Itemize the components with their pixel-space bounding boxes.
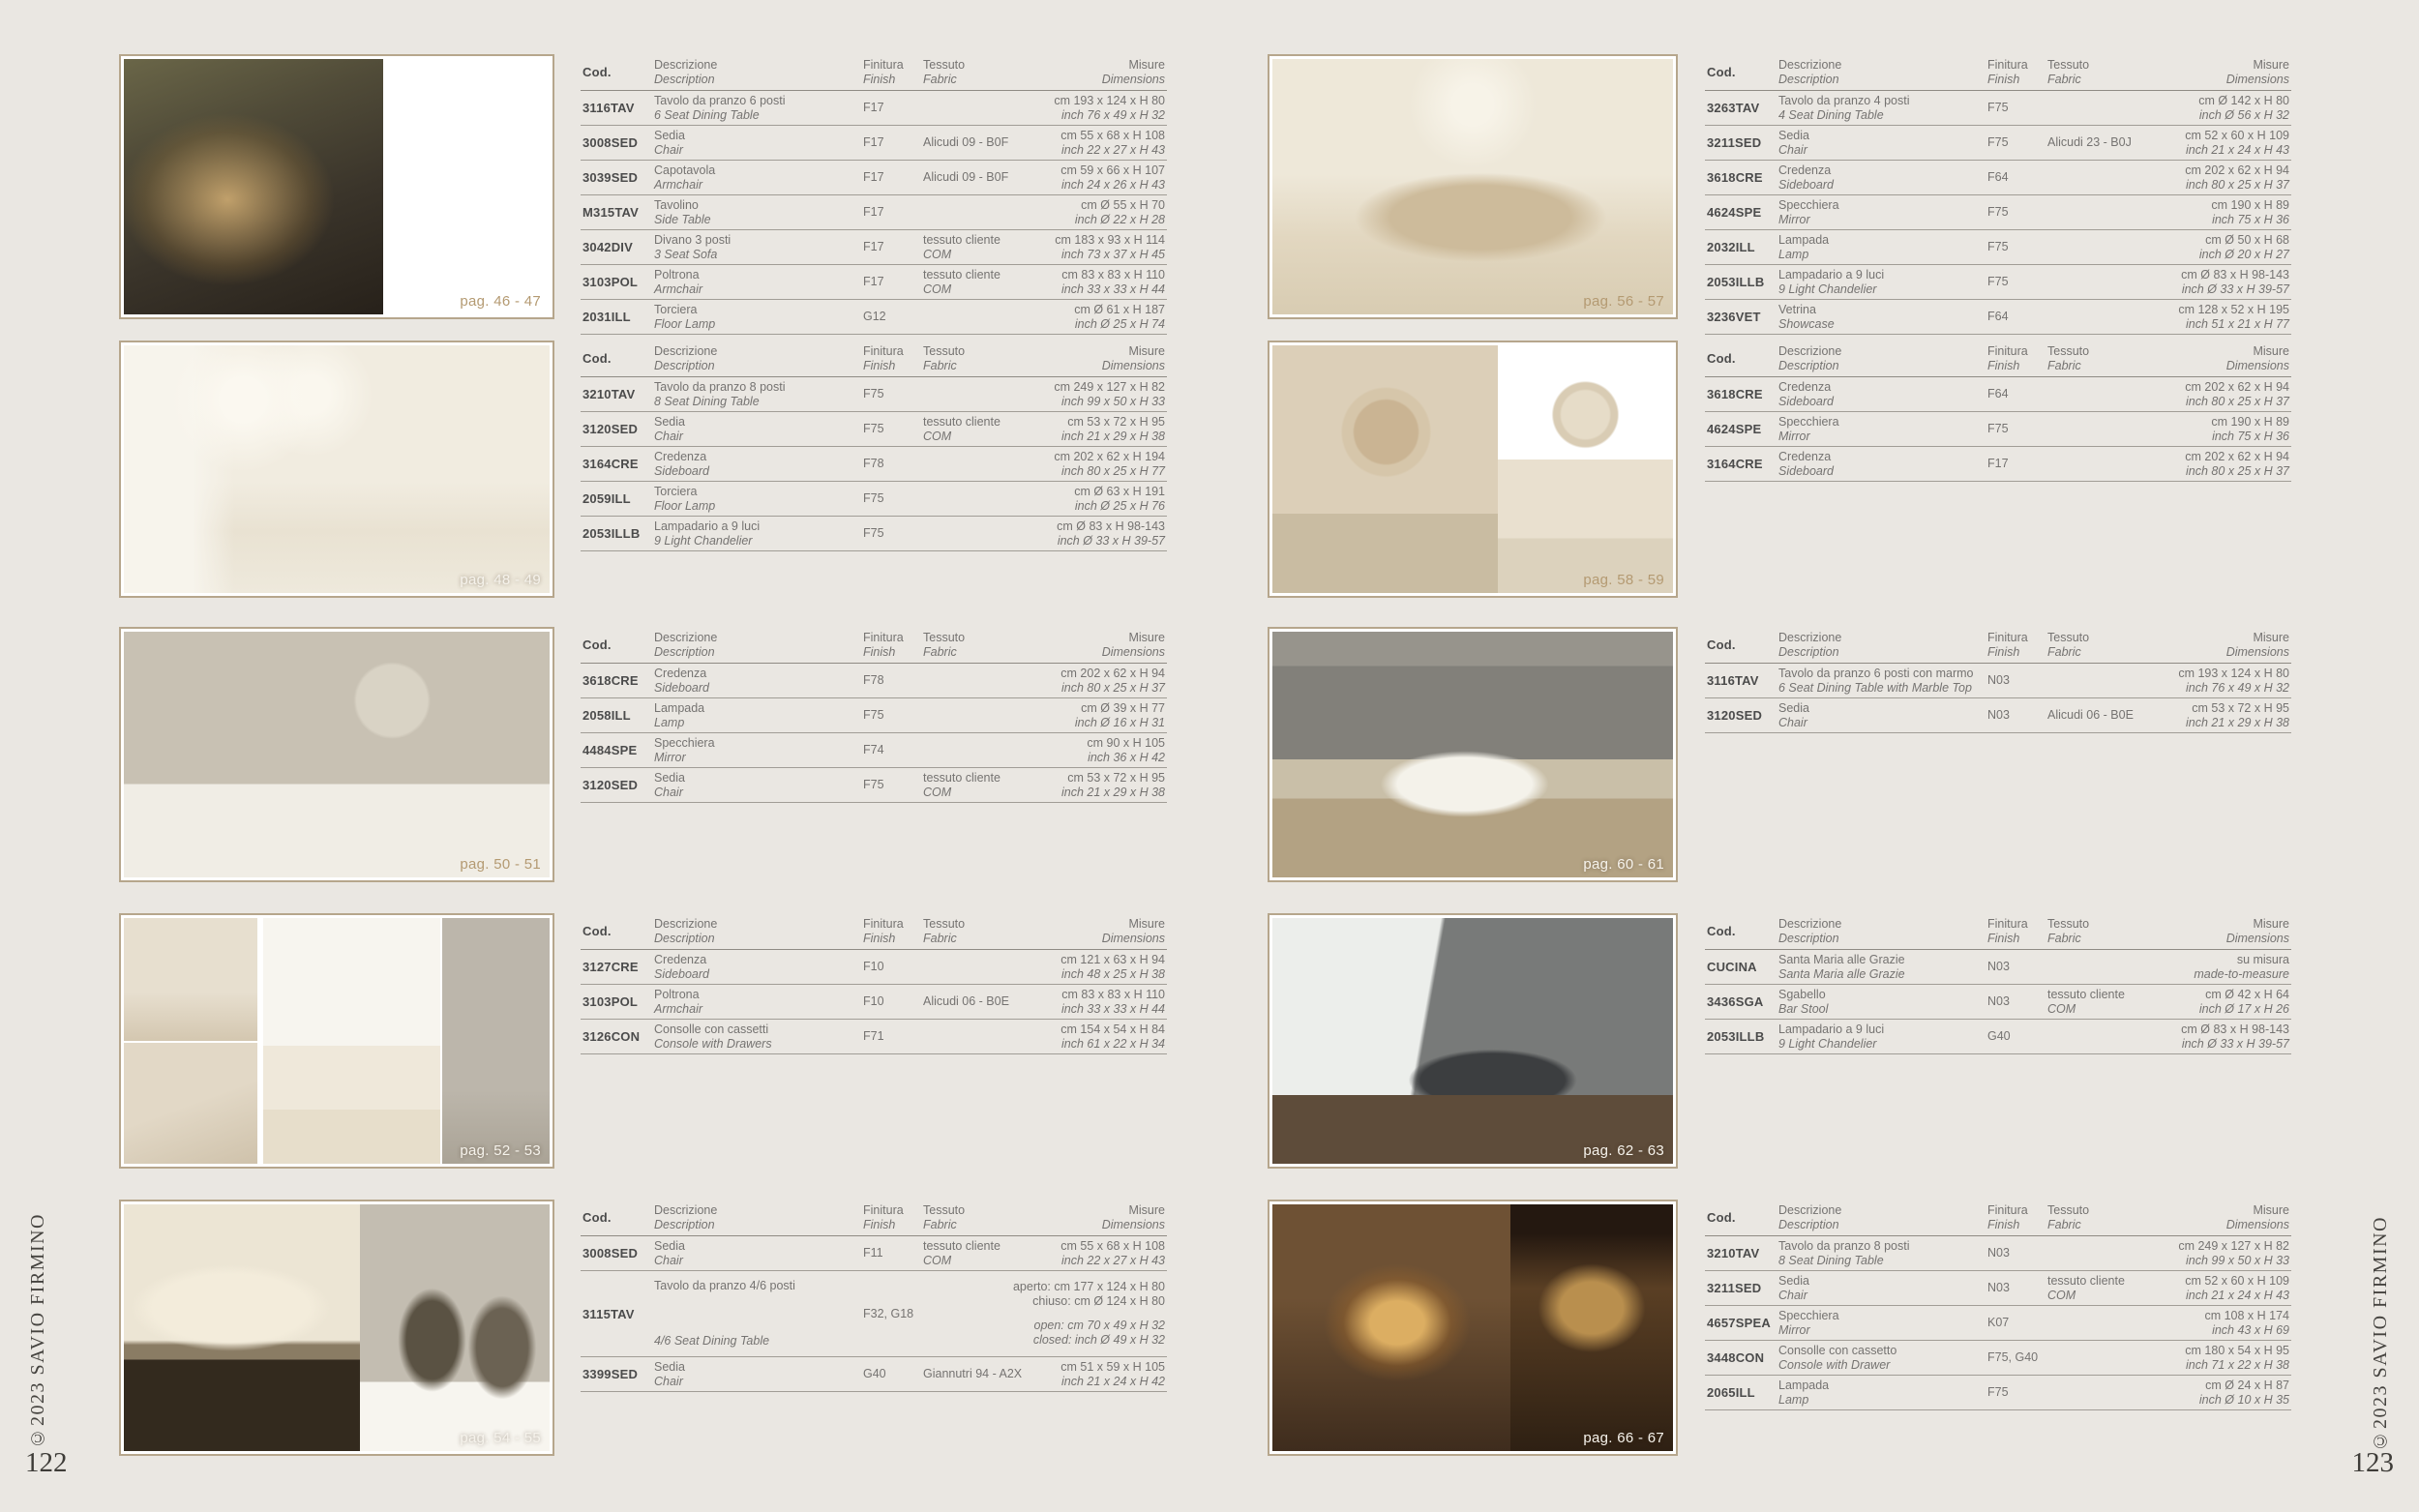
product-description: LampadaLamp xyxy=(1778,230,1984,264)
photo-block-5: pag. 54 - 55 xyxy=(119,1200,554,1456)
product-dimensions: cm 190 x H 89inch 75 x H 36 xyxy=(2111,195,2289,229)
product-code: 3211SED xyxy=(1707,1271,1777,1305)
product-description: VetrinaShowcase xyxy=(1778,300,1984,334)
product-dimensions: cm 52 x 60 x H 109inch 21 x 24 x H 43 xyxy=(2111,1271,2289,1305)
photo-block-3: pag. 50 - 51 xyxy=(119,627,554,882)
product-description: Tavolo da pranzo 4/6 posti4/6 Seat Dinin… xyxy=(654,1271,859,1356)
product-description: Tavolo da pranzo 8 posti8 Seat Dining Ta… xyxy=(654,377,859,411)
product-finish: F10 xyxy=(863,950,921,984)
header-dimensions: MisureDimensions xyxy=(2111,913,2289,949)
copyright-left: ©2023 SAVIO FIRMINO xyxy=(27,1213,49,1449)
product-dimensions: cm Ø 50 x H 68inch Ø 20 x H 27 xyxy=(2111,230,2289,264)
table-row: 3103POLPoltronaArmchairF17tessuto client… xyxy=(581,265,1167,300)
header-dimensions: MisureDimensions xyxy=(987,913,1165,949)
table-row: 3120SEDSediaChairN03Alicudi 06 - B0Ecm 5… xyxy=(1705,698,2291,733)
table-row: 3120SEDSediaChairF75tessuto clienteCOMcm… xyxy=(581,768,1167,803)
header-finish: FinituraFinish xyxy=(1987,1200,2046,1235)
product-dimensions: cm 128 x 52 x H 195inch 51 x 21 x H 77 xyxy=(2111,300,2289,334)
product-finish: F71 xyxy=(863,1020,921,1053)
header-dimensions: MisureDimensions xyxy=(2111,1200,2289,1235)
product-dimensions: su misuramade-to-measure xyxy=(2111,950,2289,984)
table-row: 3039SEDCapotavolaArmchairF17Alicudi 09 -… xyxy=(581,161,1167,195)
furniture-photo xyxy=(124,345,550,593)
product-code: 3126CON xyxy=(582,1020,652,1053)
product-description: Tavolo da pranzo 8 posti8 Seat Dining Ta… xyxy=(1778,1236,1984,1270)
product-description: CredenzaSideboard xyxy=(1778,377,1984,411)
header-code: Cod. xyxy=(1707,341,1777,376)
product-code: 2053ILLB xyxy=(1707,265,1777,299)
table-header: Cod.DescrizioneDescriptionFinituraFinish… xyxy=(581,627,1167,664)
product-dimensions: cm Ø 42 x H 64inch Ø 17 x H 26 xyxy=(2111,985,2289,1019)
product-code: 2058ILL xyxy=(582,698,652,732)
product-code: 3116TAV xyxy=(1707,664,1777,697)
product-description: LampadaLamp xyxy=(654,698,859,732)
product-description: CredenzaSideboard xyxy=(1778,447,1984,481)
table-row: 2059ILLTorcieraFloor LampF75cm Ø 63 x H … xyxy=(581,482,1167,517)
table-header: Cod.DescrizioneDescriptionFinituraFinish… xyxy=(1705,913,2291,950)
photo-block-2: pag. 48 - 49 xyxy=(119,341,554,598)
product-finish: F75 xyxy=(1987,1376,2046,1409)
header-code: Cod. xyxy=(1707,627,1777,663)
product-finish: N03 xyxy=(1987,664,2046,697)
product-description: SediaChair xyxy=(1778,1271,1984,1305)
table-row: 2053ILLBLampadario a 9 luci9 Light Chand… xyxy=(1705,1020,2291,1054)
spec-table: Cod.DescrizioneDescriptionFinituraFinish… xyxy=(581,913,1167,1054)
product-finish: F75 xyxy=(1987,126,2046,160)
product-description: Tavolo da pranzo 6 posti con marmo6 Seat… xyxy=(1778,664,1984,697)
product-dimensions: cm 202 x 62 x H 94inch 80 x 25 x H 37 xyxy=(2111,447,2289,481)
table-row: 2053ILLBLampadario a 9 luci9 Light Chand… xyxy=(581,517,1167,551)
header-finish: FinituraFinish xyxy=(1987,54,2046,90)
header-description: DescrizioneDescription xyxy=(1778,1200,1984,1235)
catalog-spread: pag. 46 - 47 pag. 48 - 49 pag. 50 - 51 p… xyxy=(0,0,2419,1512)
product-description: Tavolo da pranzo 4 posti4 Seat Dining Ta… xyxy=(1778,91,1984,125)
product-code: 4624SPE xyxy=(1707,195,1777,229)
product-description: Divano 3 posti3 Seat Sofa xyxy=(654,230,859,264)
table-row: 3618CRECredenzaSideboardF64cm 202 x 62 x… xyxy=(1705,377,2291,412)
product-dimensions: cm 59 x 66 x H 107inch 24 x 26 x H 43 xyxy=(987,161,1165,194)
product-finish: F17 xyxy=(863,126,921,160)
table-row: 3126CONConsolle con cassettiConsole with… xyxy=(581,1020,1167,1054)
product-finish: G12 xyxy=(863,300,921,334)
page-ref-label: pag. 54 - 55 xyxy=(460,1430,541,1446)
product-code: 3008SED xyxy=(582,126,652,160)
header-dimensions: MisureDimensions xyxy=(987,54,1165,90)
product-dimensions: cm Ø 83 x H 98-143inch Ø 33 x H 39-57 xyxy=(2111,1020,2289,1053)
product-code: 3211SED xyxy=(1707,126,1777,160)
header-finish: FinituraFinish xyxy=(1987,341,2046,376)
header-dimensions: MisureDimensions xyxy=(2111,54,2289,90)
product-code: 3263TAV xyxy=(1707,91,1777,125)
table-row: 3211SEDSediaChairN03tessuto clienteCOMcm… xyxy=(1705,1271,2291,1306)
header-description: DescrizioneDescription xyxy=(654,1200,859,1235)
product-code: 3399SED xyxy=(582,1357,652,1391)
header-finish: FinituraFinish xyxy=(863,913,921,949)
header-description: DescrizioneDescription xyxy=(1778,913,1984,949)
product-finish: F75 xyxy=(863,377,921,411)
header-dimensions: MisureDimensions xyxy=(987,341,1165,376)
table-row: 3008SEDSediaChairF17Alicudi 09 - B0Fcm 5… xyxy=(581,126,1167,161)
table-row: 3210TAVTavolo da pranzo 8 posti8 Seat Di… xyxy=(1705,1236,2291,1271)
table-row: M315TAVTavolinoSide TableF17cm Ø 55 x H … xyxy=(581,195,1167,230)
furniture-photo xyxy=(124,1204,361,1451)
product-description: CredenzaSideboard xyxy=(654,950,859,984)
page-number-right: 123 xyxy=(2352,1447,2395,1479)
product-dimensions: cm 193 x 124 x H 80inch 76 x 49 x H 32 xyxy=(987,91,1165,125)
product-code: 3236VET xyxy=(1707,300,1777,334)
product-code: 2053ILLB xyxy=(1707,1020,1777,1053)
header-code: Cod. xyxy=(582,627,652,663)
table-row: 3116TAVTavolo da pranzo 6 posti6 Seat Di… xyxy=(581,91,1167,126)
header-dimensions: MisureDimensions xyxy=(987,1200,1165,1235)
product-finish: F11 xyxy=(863,1236,921,1270)
product-dimensions: cm 90 x H 105inch 36 x H 42 xyxy=(987,733,1165,767)
product-dimensions: cm Ø 24 x H 87inch Ø 10 x H 35 xyxy=(2111,1376,2289,1409)
product-dimensions: cm Ø 83 x H 98-143inch Ø 33 x H 39-57 xyxy=(2111,265,2289,299)
furniture-photo xyxy=(442,918,551,1164)
header-finish: FinituraFinish xyxy=(863,1200,921,1235)
product-dimensions: cm Ø 61 x H 187inch Ø 25 x H 74 xyxy=(987,300,1165,334)
furniture-photo xyxy=(1272,345,1500,593)
header-description: DescrizioneDescription xyxy=(654,913,859,949)
product-code: 3103POL xyxy=(582,265,652,299)
page-ref-label: pag. 52 - 53 xyxy=(460,1142,541,1159)
table-row: 3448CONConsolle con cassettoConsole with… xyxy=(1705,1341,2291,1376)
product-description: TavolinoSide Table xyxy=(654,195,859,229)
table-header: Cod.DescrizioneDescriptionFinituraFinish… xyxy=(1705,1200,2291,1236)
product-description: Consolle con cassettiConsole with Drawer… xyxy=(654,1020,859,1053)
product-finish: F17 xyxy=(863,265,921,299)
product-dimensions: cm 51 x 59 x H 105inch 21 x 24 x H 42 xyxy=(987,1357,1165,1391)
product-description: LampadaLamp xyxy=(1778,1376,1984,1409)
product-description: Lampadario a 9 luci9 Light Chandelier xyxy=(654,517,859,550)
product-dimensions: cm 202 x 62 x H 94inch 80 x 25 x H 37 xyxy=(2111,377,2289,411)
table-row: CUCINASanta Maria alle GrazieSanta Maria… xyxy=(1705,950,2291,985)
product-dimensions: cm Ø 63 x H 191inch Ø 25 x H 76 xyxy=(987,482,1165,516)
table-row: 3116TAVTavolo da pranzo 6 posti con marm… xyxy=(1705,664,2291,698)
product-description: SediaChair xyxy=(654,768,859,802)
product-finish: F75 xyxy=(863,517,921,550)
product-finish: F64 xyxy=(1987,300,2046,334)
table-row: 3164CRECredenzaSideboardF78cm 202 x 62 x… xyxy=(581,447,1167,482)
product-code: 3618CRE xyxy=(582,664,652,697)
product-description: Tavolo da pranzo 6 posti6 Seat Dining Ta… xyxy=(654,91,859,125)
product-dimensions: cm 183 x 93 x H 114inch 73 x 37 x H 45 xyxy=(987,230,1165,264)
furniture-photo xyxy=(360,1204,550,1451)
product-finish: F75 xyxy=(863,768,921,802)
product-code: 3618CRE xyxy=(1707,161,1777,194)
furniture-photo xyxy=(1272,59,1673,314)
header-finish: FinituraFinish xyxy=(863,627,921,663)
product-description: Lampadario a 9 luci9 Light Chandelier xyxy=(1778,265,1984,299)
header-code: Cod. xyxy=(582,913,652,949)
table-row: 3008SEDSediaChairF11tessuto clienteCOMcm… xyxy=(581,1236,1167,1271)
furniture-photo xyxy=(1272,632,1673,877)
table-row: 3115TAVTavolo da pranzo 4/6 posti4/6 Sea… xyxy=(581,1271,1167,1357)
product-code: 2065ILL xyxy=(1707,1376,1777,1409)
product-finish: F32, G18 xyxy=(863,1271,921,1356)
header-code: Cod. xyxy=(1707,913,1777,949)
product-finish: F75 xyxy=(1987,195,2046,229)
product-dimensions: cm 190 x H 89inch 75 x H 36 xyxy=(2111,412,2289,446)
product-description: SpecchieraMirror xyxy=(1778,412,1984,446)
table-row: 3211SEDSediaChairF75Alicudi 23 - B0Jcm 5… xyxy=(1705,126,2291,161)
product-code: 2031ILL xyxy=(582,300,652,334)
product-code: 4484SPE xyxy=(582,733,652,767)
product-description: CredenzaSideboard xyxy=(654,447,859,481)
spec-table: Cod.DescrizioneDescriptionFinituraFinish… xyxy=(1705,341,2291,482)
product-code: 2053ILLB xyxy=(582,517,652,550)
page-ref-label: pag. 62 - 63 xyxy=(1583,1142,1664,1159)
product-code: 3008SED xyxy=(582,1236,652,1270)
furniture-photo xyxy=(124,632,550,877)
product-description: Santa Maria alle GrazieSanta Maria alle … xyxy=(1778,950,1984,984)
page-ref-label: pag. 58 - 59 xyxy=(1583,572,1664,588)
product-finish: F75 xyxy=(1987,230,2046,264)
product-finish: F78 xyxy=(863,664,921,697)
product-dimensions: cm 55 x 68 x H 108inch 22 x 27 x H 43 xyxy=(987,1236,1165,1270)
product-code: 3164CRE xyxy=(582,447,652,481)
product-code: 4657SPEA xyxy=(1707,1306,1777,1340)
product-dimensions: cm 121 x 63 x H 94inch 48 x 25 x H 38 xyxy=(987,950,1165,984)
spec-table: Cod.DescrizioneDescriptionFinituraFinish… xyxy=(1705,913,2291,1054)
spec-table: Cod.DescrizioneDescriptionFinituraFinish… xyxy=(1705,1200,2291,1410)
furniture-photo xyxy=(1272,1204,1512,1451)
product-description: SediaChair xyxy=(654,1236,859,1270)
page-ref-label: pag. 50 - 51 xyxy=(460,856,541,873)
product-finish: F17 xyxy=(863,195,921,229)
product-finish: F64 xyxy=(1987,377,2046,411)
product-code: 3164CRE xyxy=(1707,447,1777,481)
header-description: DescrizioneDescription xyxy=(1778,341,1984,376)
product-code: 3103POL xyxy=(582,985,652,1019)
product-dimensions: cm 53 x 72 x H 95inch 21 x 29 x H 38 xyxy=(987,412,1165,446)
product-code: 3120SED xyxy=(1707,698,1777,732)
product-dimensions: cm 52 x 60 x H 109inch 21 x 24 x H 43 xyxy=(2111,126,2289,160)
header-code: Cod. xyxy=(1707,1200,1777,1235)
product-description: TorcieraFloor Lamp xyxy=(654,482,859,516)
product-description: SpecchieraMirror xyxy=(654,733,859,767)
product-finish: F64 xyxy=(1987,161,2046,194)
product-description: CredenzaSideboard xyxy=(1778,161,1984,194)
header-dimensions: MisureDimensions xyxy=(2111,627,2289,663)
product-code: 3116TAV xyxy=(582,91,652,125)
table-row: 3236VETVetrinaShowcaseF64cm 128 x 52 x H… xyxy=(1705,300,2291,335)
product-description: SediaChair xyxy=(654,1357,859,1391)
header-dimensions: MisureDimensions xyxy=(2111,341,2289,376)
product-finish: F75 xyxy=(1987,412,2046,446)
product-description: SediaChair xyxy=(654,412,859,446)
product-finish: G40 xyxy=(863,1357,921,1391)
product-finish: F10 xyxy=(863,985,921,1019)
furniture-photo xyxy=(124,1043,257,1164)
product-dimensions: cm Ø 83 x H 98-143inch Ø 33 x H 39-57 xyxy=(987,517,1165,550)
product-code: M315TAV xyxy=(582,195,652,229)
table-row: 3210TAVTavolo da pranzo 8 posti8 Seat Di… xyxy=(581,377,1167,412)
product-code: CUCINA xyxy=(1707,950,1777,984)
table-header: Cod.DescrizioneDescriptionFinituraFinish… xyxy=(581,1200,1167,1236)
product-code: 2059ILL xyxy=(582,482,652,516)
product-code: 3120SED xyxy=(582,412,652,446)
page-ref-label: pag. 46 - 47 xyxy=(460,293,541,310)
product-finish: G40 xyxy=(1987,1020,2046,1053)
product-dimensions: cm Ø 55 x H 70inch Ø 22 x H 28 xyxy=(987,195,1165,229)
product-dimensions: cm 249 x 127 x H 82inch 99 x 50 x H 33 xyxy=(2111,1236,2289,1270)
table-row: 3120SEDSediaChairF75tessuto clienteCOMcm… xyxy=(581,412,1167,447)
product-code: 3039SED xyxy=(582,161,652,194)
furniture-photo xyxy=(1498,345,1673,593)
product-finish: F75 xyxy=(863,412,921,446)
product-finish: F75 xyxy=(863,482,921,516)
product-code: 3436SGA xyxy=(1707,985,1777,1019)
product-description: PoltronaArmchair xyxy=(654,985,859,1019)
header-description: DescrizioneDescription xyxy=(1778,54,1984,90)
product-code: 3115TAV xyxy=(582,1271,652,1356)
product-dimensions: cm 83 x 83 x H 110inch 33 x 33 x H 44 xyxy=(987,265,1165,299)
product-code: 3210TAV xyxy=(582,377,652,411)
product-dimensions: cm 53 x 72 x H 95inch 21 x 29 x H 38 xyxy=(987,768,1165,802)
product-finish: F75 xyxy=(1987,91,2046,125)
product-code: 3127CRE xyxy=(582,950,652,984)
table-header: Cod.DescrizioneDescriptionFinituraFinish… xyxy=(1705,54,2291,91)
spec-table: Cod.DescrizioneDescriptionFinituraFinish… xyxy=(581,627,1167,803)
product-dimensions: cm 55 x 68 x H 108inch 22 x 27 x H 43 xyxy=(987,126,1165,160)
product-dimensions: cm 202 x 62 x H 94inch 80 x 25 x H 37 xyxy=(987,664,1165,697)
table-row: 4624SPESpecchieraMirrorF75cm 190 x H 89i… xyxy=(1705,195,2291,230)
product-finish: F78 xyxy=(863,447,921,481)
spec-table: Cod.DescrizioneDescriptionFinituraFinish… xyxy=(1705,627,2291,733)
spec-table: Cod.DescrizioneDescriptionFinituraFinish… xyxy=(1705,54,2291,335)
product-finish: N03 xyxy=(1987,985,2046,1019)
product-dimensions: cm 193 x 124 x H 80inch 76 x 49 x H 32 xyxy=(2111,664,2289,697)
product-description: Consolle con cassettoConsole with Drawer xyxy=(1778,1341,1984,1375)
table-row: 2058ILLLampadaLampF75cm Ø 39 x H 77inch … xyxy=(581,698,1167,733)
header-finish: FinituraFinish xyxy=(1987,913,2046,949)
furniture-photo xyxy=(1272,918,1673,1164)
table-row: 3127CRECredenzaSideboardF10cm 121 x 63 x… xyxy=(581,950,1167,985)
table-row: 4657SPEASpecchieraMirrorK07cm 108 x H 17… xyxy=(1705,1306,2291,1341)
table-row: 3618CRECredenzaSideboardF64cm 202 x 62 x… xyxy=(1705,161,2291,195)
product-description: SediaChair xyxy=(1778,698,1984,732)
furniture-photo xyxy=(1510,1204,1673,1451)
table-row: 3164CRECredenzaSideboardF17cm 202 x 62 x… xyxy=(1705,447,2291,482)
product-dimensions: cm 180 x 54 x H 95inch 71 x 22 x H 38 xyxy=(2111,1341,2289,1375)
table-header: Cod.DescrizioneDescriptionFinituraFinish… xyxy=(581,913,1167,950)
table-row: 3618CRECredenzaSideboardF78cm 202 x 62 x… xyxy=(581,664,1167,698)
header-description: DescrizioneDescription xyxy=(654,627,859,663)
product-dimensions: cm 202 x 62 x H 94inch 80 x 25 x H 37 xyxy=(2111,161,2289,194)
product-code: 3210TAV xyxy=(1707,1236,1777,1270)
product-finish: F75, G40 xyxy=(1987,1341,2046,1375)
table-row: 2032ILLLampadaLampF75cm Ø 50 x H 68inch … xyxy=(1705,230,2291,265)
page-ref-label: pag. 66 - 67 xyxy=(1583,1430,1664,1446)
product-code: 3618CRE xyxy=(1707,377,1777,411)
product-finish: N03 xyxy=(1987,950,2046,984)
product-dimensions: cm Ø 39 x H 77inch Ø 16 x H 31 xyxy=(987,698,1165,732)
table-header: Cod.DescrizioneDescriptionFinituraFinish… xyxy=(1705,627,2291,664)
table-header: Cod.DescrizioneDescriptionFinituraFinish… xyxy=(1705,341,2291,377)
product-finish: N03 xyxy=(1987,698,2046,732)
product-finish: F17 xyxy=(863,161,921,194)
product-code: 3042DIV xyxy=(582,230,652,264)
header-description: DescrizioneDescription xyxy=(654,341,859,376)
product-description: PoltronaArmchair xyxy=(654,265,859,299)
table-row: 3103POLPoltronaArmchairF10Alicudi 06 - B… xyxy=(581,985,1167,1020)
product-dimensions: cm 53 x 72 x H 95inch 21 x 29 x H 38 xyxy=(2111,698,2289,732)
photo-block-10: pag. 66 - 67 xyxy=(1268,1200,1678,1456)
header-code: Cod. xyxy=(1707,54,1777,90)
product-finish: F17 xyxy=(1987,447,2046,481)
header-finish: FinituraFinish xyxy=(863,54,921,90)
product-dimensions: aperto: cm 177 x 124 x H 80chiuso: cm Ø … xyxy=(987,1271,1165,1356)
furniture-photo xyxy=(124,59,383,314)
furniture-photo xyxy=(263,918,440,1164)
product-code: 3448CON xyxy=(1707,1341,1777,1375)
table-row: 2053ILLBLampadario a 9 luci9 Light Chand… xyxy=(1705,265,2291,300)
furniture-photo xyxy=(124,918,257,1041)
product-finish: F75 xyxy=(863,698,921,732)
header-code: Cod. xyxy=(582,341,652,376)
table-header: Cod.DescrizioneDescriptionFinituraFinish… xyxy=(581,341,1167,377)
spec-table: Cod.DescrizioneDescriptionFinituraFinish… xyxy=(581,54,1167,335)
product-finish: N03 xyxy=(1987,1236,2046,1270)
photo-block-8: pag. 60 - 61 xyxy=(1268,627,1678,882)
product-description: CredenzaSideboard xyxy=(654,664,859,697)
page-ref-label: pag. 48 - 49 xyxy=(460,572,541,588)
header-finish: FinituraFinish xyxy=(863,341,921,376)
product-description: TorcieraFloor Lamp xyxy=(654,300,859,334)
photo-block-7: pag. 58 - 59 xyxy=(1268,341,1678,598)
header-dimensions: MisureDimensions xyxy=(987,627,1165,663)
header-code: Cod. xyxy=(582,54,652,90)
header-description: DescrizioneDescription xyxy=(654,54,859,90)
photo-block-9: pag. 62 - 63 xyxy=(1268,913,1678,1169)
header-code: Cod. xyxy=(582,1200,652,1235)
table-row: 4484SPESpecchieraMirrorF74cm 90 x H 105i… xyxy=(581,733,1167,768)
product-code: 2032ILL xyxy=(1707,230,1777,264)
product-description: SgabelloBar Stool xyxy=(1778,985,1984,1019)
product-dimensions: cm 108 x H 174inch 43 x H 69 xyxy=(2111,1306,2289,1340)
table-row: 2031ILLTorcieraFloor LampG12cm Ø 61 x H … xyxy=(581,300,1167,335)
header-finish: FinituraFinish xyxy=(1987,627,2046,663)
product-finish: F75 xyxy=(1987,265,2046,299)
product-dimensions: cm 202 x 62 x H 194inch 80 x 25 x H 77 xyxy=(987,447,1165,481)
spec-table: Cod.DescrizioneDescriptionFinituraFinish… xyxy=(581,341,1167,551)
product-code: 4624SPE xyxy=(1707,412,1777,446)
product-finish: F74 xyxy=(863,733,921,767)
product-description: CapotavolaArmchair xyxy=(654,161,859,194)
product-dimensions: cm Ø 142 x H 80inch Ø 56 x H 32 xyxy=(2111,91,2289,125)
photo-block-1: pag. 46 - 47 xyxy=(119,54,554,319)
table-row: 3399SEDSediaChairG40Giannutri 94 - A2Xcm… xyxy=(581,1357,1167,1392)
table-header: Cod.DescrizioneDescriptionFinituraFinish… xyxy=(581,54,1167,91)
product-dimensions: cm 154 x 54 x H 84inch 61 x 22 x H 34 xyxy=(987,1020,1165,1053)
page-number-left: 122 xyxy=(25,1447,68,1479)
page-ref-label: pag. 60 - 61 xyxy=(1583,856,1664,873)
product-description: SpecchieraMirror xyxy=(1778,1306,1984,1340)
photo-block-6: pag. 56 - 57 xyxy=(1268,54,1678,319)
product-description: SediaChair xyxy=(654,126,859,160)
table-row: 3042DIVDivano 3 posti3 Seat SofaF17tessu… xyxy=(581,230,1167,265)
copyright-right: ©2023 SAVIO FIRMINO xyxy=(2370,1216,2392,1452)
table-row: 3263TAVTavolo da pranzo 4 posti4 Seat Di… xyxy=(1705,91,2291,126)
product-finish: K07 xyxy=(1987,1306,2046,1340)
product-dimensions: cm 249 x 127 x H 82inch 99 x 50 x H 33 xyxy=(987,377,1165,411)
page-ref-label: pag. 56 - 57 xyxy=(1583,293,1664,310)
product-dimensions: cm 83 x 83 x H 110inch 33 x 33 x H 44 xyxy=(987,985,1165,1019)
product-code: 3120SED xyxy=(582,768,652,802)
table-row: 2065ILLLampadaLampF75cm Ø 24 x H 87inch … xyxy=(1705,1376,2291,1410)
